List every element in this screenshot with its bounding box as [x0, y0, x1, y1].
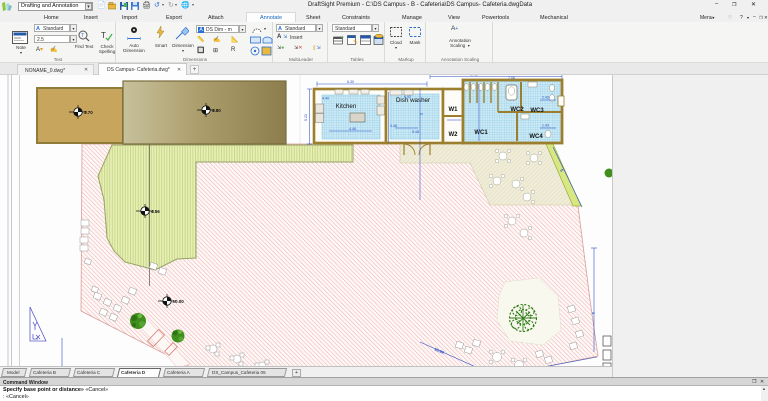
svg-text:4.46: 4.46 [349, 127, 356, 131]
svg-text:3.48: 3.48 [390, 124, 397, 128]
svg-text:3.70: 3.70 [84, 110, 93, 115]
svg-text:T: T [81, 33, 84, 39]
svg-text:17.87: 17.87 [470, 75, 479, 77]
svg-text:4.56: 4.56 [151, 209, 160, 214]
svg-text:WC2: WC2 [510, 107, 524, 113]
svg-text:T: T [101, 31, 106, 40]
svg-text:WC1: WC1 [474, 130, 488, 136]
svg-text:W1: W1 [449, 107, 459, 113]
svg-text:5.48: 5.48 [412, 130, 419, 134]
svg-text:6.30: 6.30 [347, 80, 354, 84]
svg-text:±0.00: ±0.00 [173, 299, 185, 304]
svg-text:Kitchen: Kitchen [336, 103, 357, 110]
svg-text:2.43: 2.43 [542, 96, 549, 100]
svg-text:5: 5 [420, 113, 424, 115]
svg-text:WC3: WC3 [530, 108, 544, 114]
svg-text:1.43: 1.43 [542, 124, 549, 128]
svg-text:+: + [341, 35, 344, 41]
svg-text:✎: ✎ [353, 39, 358, 45]
svg-text:6.92: 6.92 [404, 95, 411, 99]
svg-text:5.23: 5.23 [304, 114, 308, 121]
svg-text:4.80: 4.80 [212, 108, 221, 113]
svg-text:Dish washer: Dish washer [396, 97, 430, 104]
svg-text:W2: W2 [449, 132, 459, 138]
svg-text:WC4: WC4 [529, 134, 543, 140]
svg-text:4.40: 4.40 [322, 97, 329, 101]
svg-text:7.06: 7.06 [508, 76, 515, 80]
